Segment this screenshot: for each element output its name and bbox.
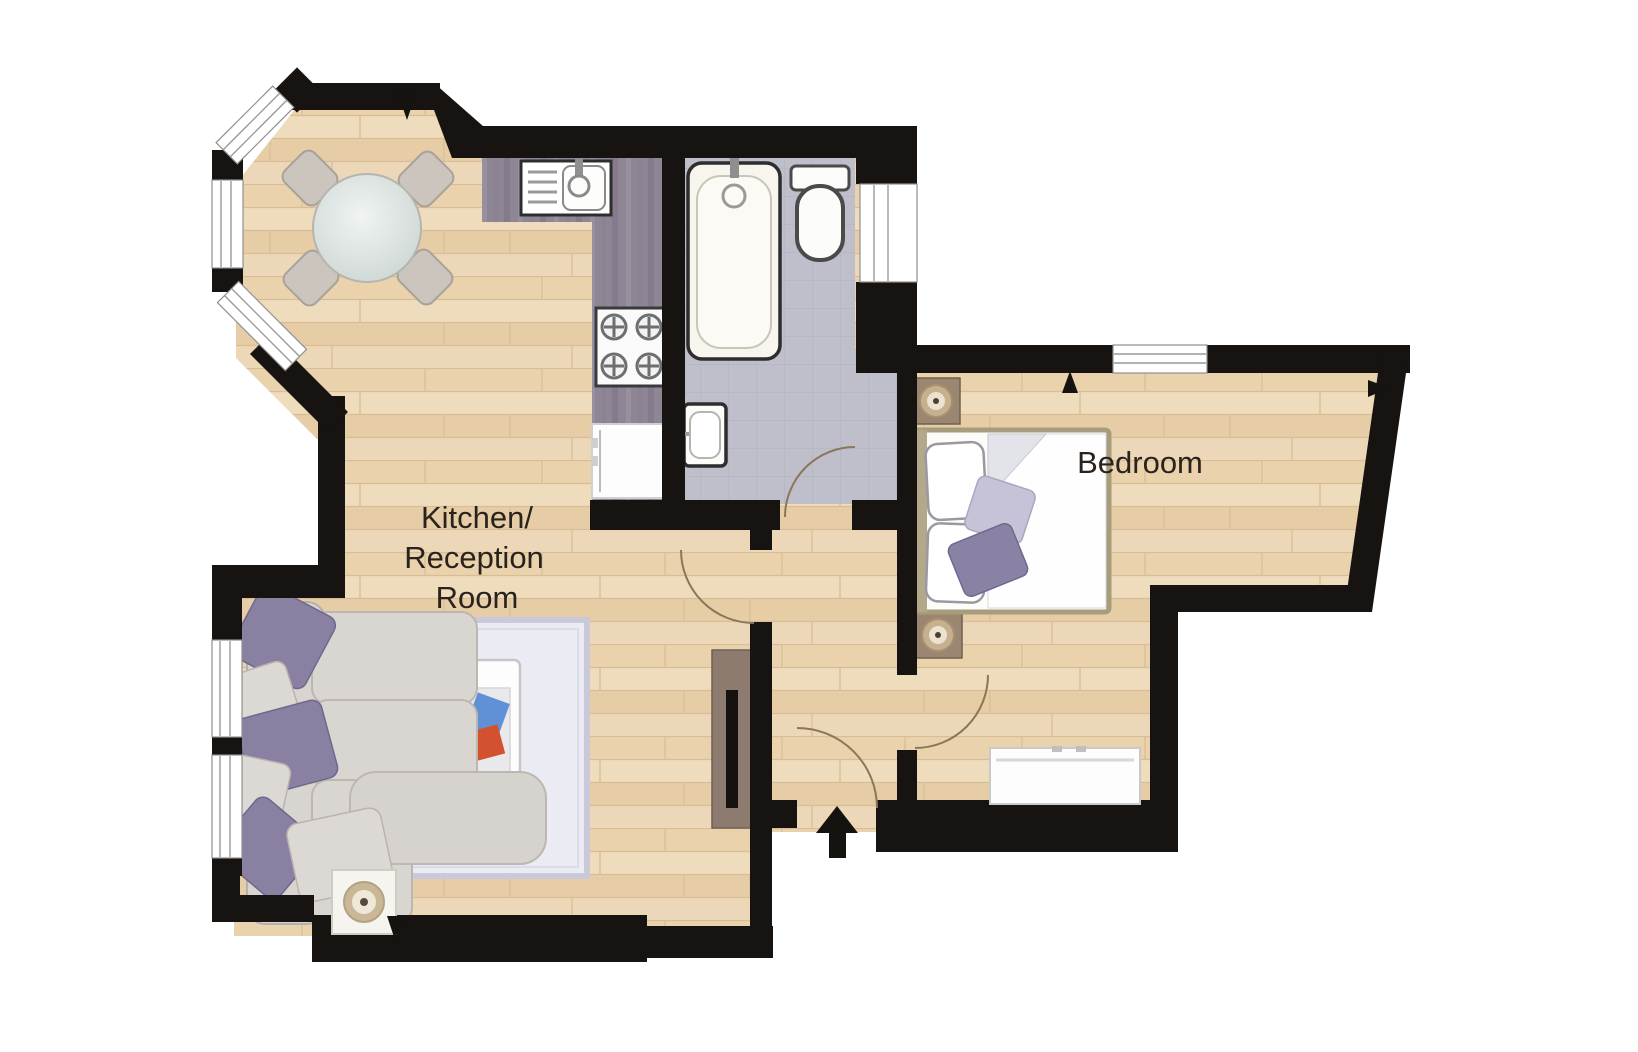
kitchen-hob (596, 308, 668, 386)
side-table-lamp (332, 870, 396, 934)
toilet (791, 166, 849, 260)
bedroom-label: Bedroom (1077, 445, 1203, 480)
nightstand-top (912, 378, 960, 424)
low-wardrobe (990, 746, 1140, 804)
washing-machine (592, 424, 668, 498)
floor-plan: Kitchen/ Reception Room Bedroom (0, 0, 1638, 1052)
kitchen-reception-label-line3: Room (436, 580, 519, 615)
bay-window-left (212, 180, 243, 268)
reception-window-upper (212, 640, 242, 737)
kitchen-reception-label-line2: Reception (404, 540, 544, 575)
kitchen-reception-label-line1: Kitchen/ (421, 500, 533, 535)
dining-table (313, 174, 421, 282)
bedroom-window (1113, 345, 1207, 373)
radiator (712, 650, 752, 828)
bathroom-window (860, 184, 917, 282)
bathtub (688, 148, 780, 359)
reception-window-lower (212, 755, 242, 858)
nightstand-bottom (914, 612, 962, 658)
